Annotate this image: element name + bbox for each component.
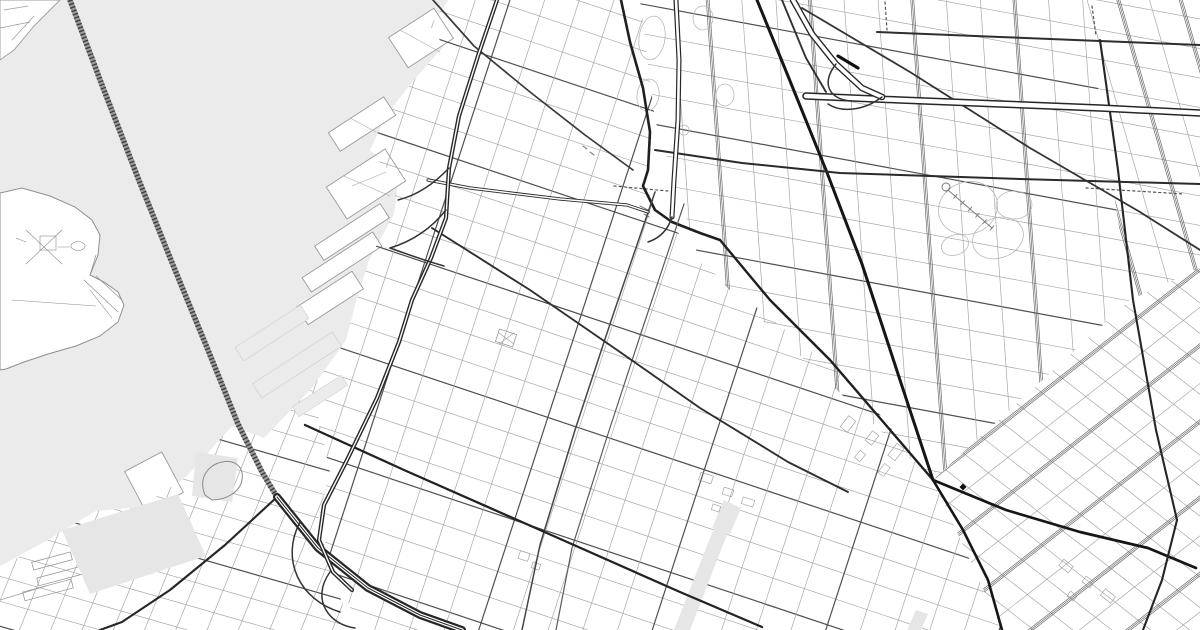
map-canvas xyxy=(0,0,1200,630)
map-screenshot xyxy=(0,0,1200,630)
map-viewport[interactable] xyxy=(0,0,1200,630)
